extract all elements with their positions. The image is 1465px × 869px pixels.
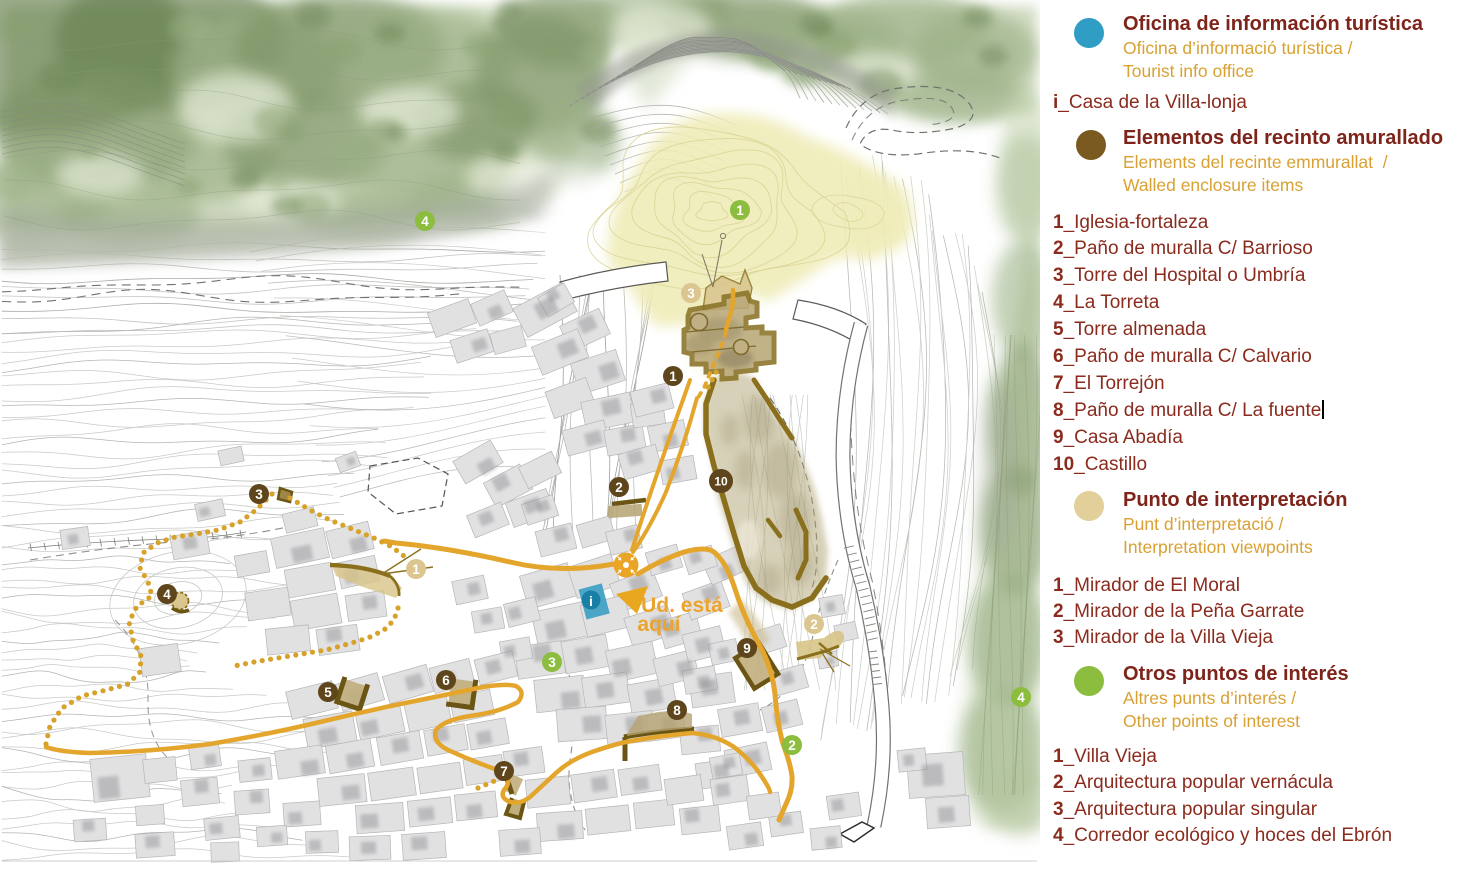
svg-text:aquí: aquí	[637, 613, 681, 636]
svg-text:1: 1	[412, 562, 420, 577]
svg-text:10: 10	[714, 474, 728, 488]
svg-text:5: 5	[324, 685, 332, 700]
svg-text:4: 4	[163, 587, 171, 602]
svg-text:2: 2	[788, 738, 796, 753]
svg-text:2: 2	[615, 480, 623, 495]
svg-text:4: 4	[421, 214, 429, 229]
svg-text:4: 4	[1017, 690, 1025, 705]
svg-text:3: 3	[687, 286, 695, 301]
svg-text:7: 7	[500, 764, 508, 779]
svg-text:i: i	[589, 593, 593, 609]
svg-text:9: 9	[743, 641, 751, 656]
svg-text:1: 1	[736, 203, 744, 218]
svg-text:3: 3	[255, 487, 263, 502]
svg-text:3: 3	[548, 655, 556, 670]
svg-text:6: 6	[442, 673, 450, 688]
svg-text:1: 1	[669, 369, 677, 384]
svg-text:8: 8	[673, 703, 681, 718]
svg-text:2: 2	[810, 617, 818, 632]
